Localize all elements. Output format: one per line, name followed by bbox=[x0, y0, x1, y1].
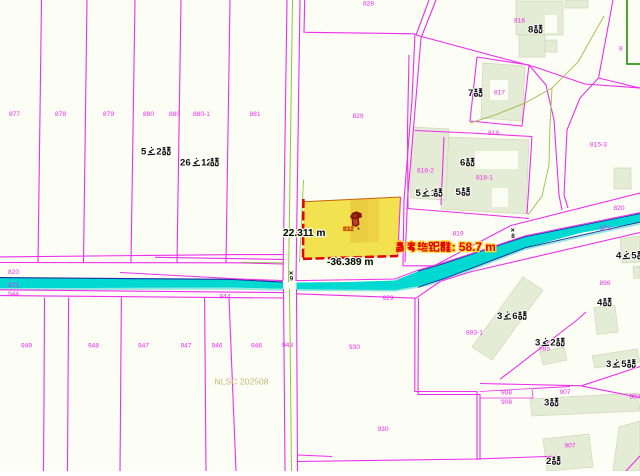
svg-text:896: 896 bbox=[600, 280, 611, 287]
svg-text:948: 948 bbox=[88, 342, 99, 349]
svg-text:3: 3 bbox=[497, 311, 502, 322]
svg-text:947: 947 bbox=[138, 342, 149, 349]
svg-text:2: 2 bbox=[550, 337, 555, 348]
svg-text:5: 5 bbox=[416, 188, 422, 199]
svg-text:878: 878 bbox=[55, 111, 66, 118]
svg-text:944: 944 bbox=[220, 293, 231, 300]
svg-text:2: 2 bbox=[156, 146, 161, 157]
svg-text:880: 880 bbox=[169, 111, 180, 118]
svg-text:4: 4 bbox=[616, 250, 622, 261]
svg-text:6: 6 bbox=[512, 311, 517, 322]
svg-text:: 58.7 m: : 58.7 m bbox=[452, 240, 496, 254]
svg-text:877: 877 bbox=[9, 111, 20, 118]
svg-text:832: 832 bbox=[343, 226, 354, 233]
svg-text:821: 821 bbox=[8, 282, 19, 289]
svg-text:NLSC 202508: NLSC 202508 bbox=[215, 377, 269, 387]
svg-text:883-1: 883-1 bbox=[466, 329, 483, 336]
svg-text:8: 8 bbox=[511, 233, 515, 240]
svg-text:816: 816 bbox=[514, 17, 525, 24]
svg-text:5: 5 bbox=[141, 146, 147, 157]
svg-text:815-3: 815-3 bbox=[590, 141, 607, 148]
svg-text:-36.389 m: -36.389 m bbox=[327, 257, 373, 268]
svg-text:3: 3 bbox=[535, 337, 540, 348]
svg-text:930: 930 bbox=[378, 426, 389, 433]
svg-text:820: 820 bbox=[614, 205, 625, 212]
svg-text:8: 8 bbox=[528, 24, 534, 35]
svg-text:5: 5 bbox=[456, 187, 462, 198]
svg-text:5: 5 bbox=[621, 359, 627, 370]
svg-text:22.311 m: 22.311 m bbox=[283, 228, 326, 239]
svg-text:3: 3 bbox=[606, 359, 611, 370]
svg-text:908: 908 bbox=[501, 389, 512, 396]
svg-text:820: 820 bbox=[8, 269, 19, 276]
svg-text:817: 817 bbox=[494, 89, 505, 96]
svg-text:881: 881 bbox=[250, 111, 261, 118]
svg-text:908: 908 bbox=[501, 399, 512, 406]
svg-text:7: 7 bbox=[468, 88, 473, 99]
svg-text:821: 821 bbox=[600, 225, 611, 232]
svg-text:946: 946 bbox=[212, 342, 223, 349]
svg-text:5: 5 bbox=[631, 250, 637, 261]
svg-text:907: 907 bbox=[565, 442, 576, 449]
svg-text:907: 907 bbox=[560, 389, 571, 396]
svg-text:818-2: 818-2 bbox=[417, 167, 434, 174]
svg-text:3: 3 bbox=[544, 397, 549, 408]
svg-text:880-1: 880-1 bbox=[193, 111, 210, 118]
svg-text:9: 9 bbox=[290, 276, 294, 283]
svg-text:6: 6 bbox=[460, 157, 465, 168]
svg-text:949: 949 bbox=[21, 342, 32, 349]
svg-text:818-1: 818-1 bbox=[476, 174, 493, 181]
svg-text:818: 818 bbox=[488, 130, 499, 137]
svg-text:943: 943 bbox=[282, 342, 293, 349]
svg-text:944: 944 bbox=[8, 291, 19, 298]
svg-text:880: 880 bbox=[143, 111, 154, 118]
svg-text:829: 829 bbox=[353, 113, 364, 120]
svg-text:4: 4 bbox=[597, 297, 603, 308]
svg-text:929: 929 bbox=[383, 295, 394, 302]
svg-text:828: 828 bbox=[363, 0, 374, 7]
svg-text:879: 879 bbox=[103, 111, 114, 118]
svg-text:884: 884 bbox=[630, 393, 640, 400]
svg-text:819: 819 bbox=[453, 230, 464, 237]
svg-text:947: 947 bbox=[181, 342, 192, 349]
svg-text:26: 26 bbox=[180, 157, 191, 168]
svg-text:2: 2 bbox=[546, 456, 551, 467]
svg-text:946: 946 bbox=[251, 342, 262, 349]
svg-text:8: 8 bbox=[619, 45, 623, 52]
svg-text:930: 930 bbox=[349, 344, 360, 351]
